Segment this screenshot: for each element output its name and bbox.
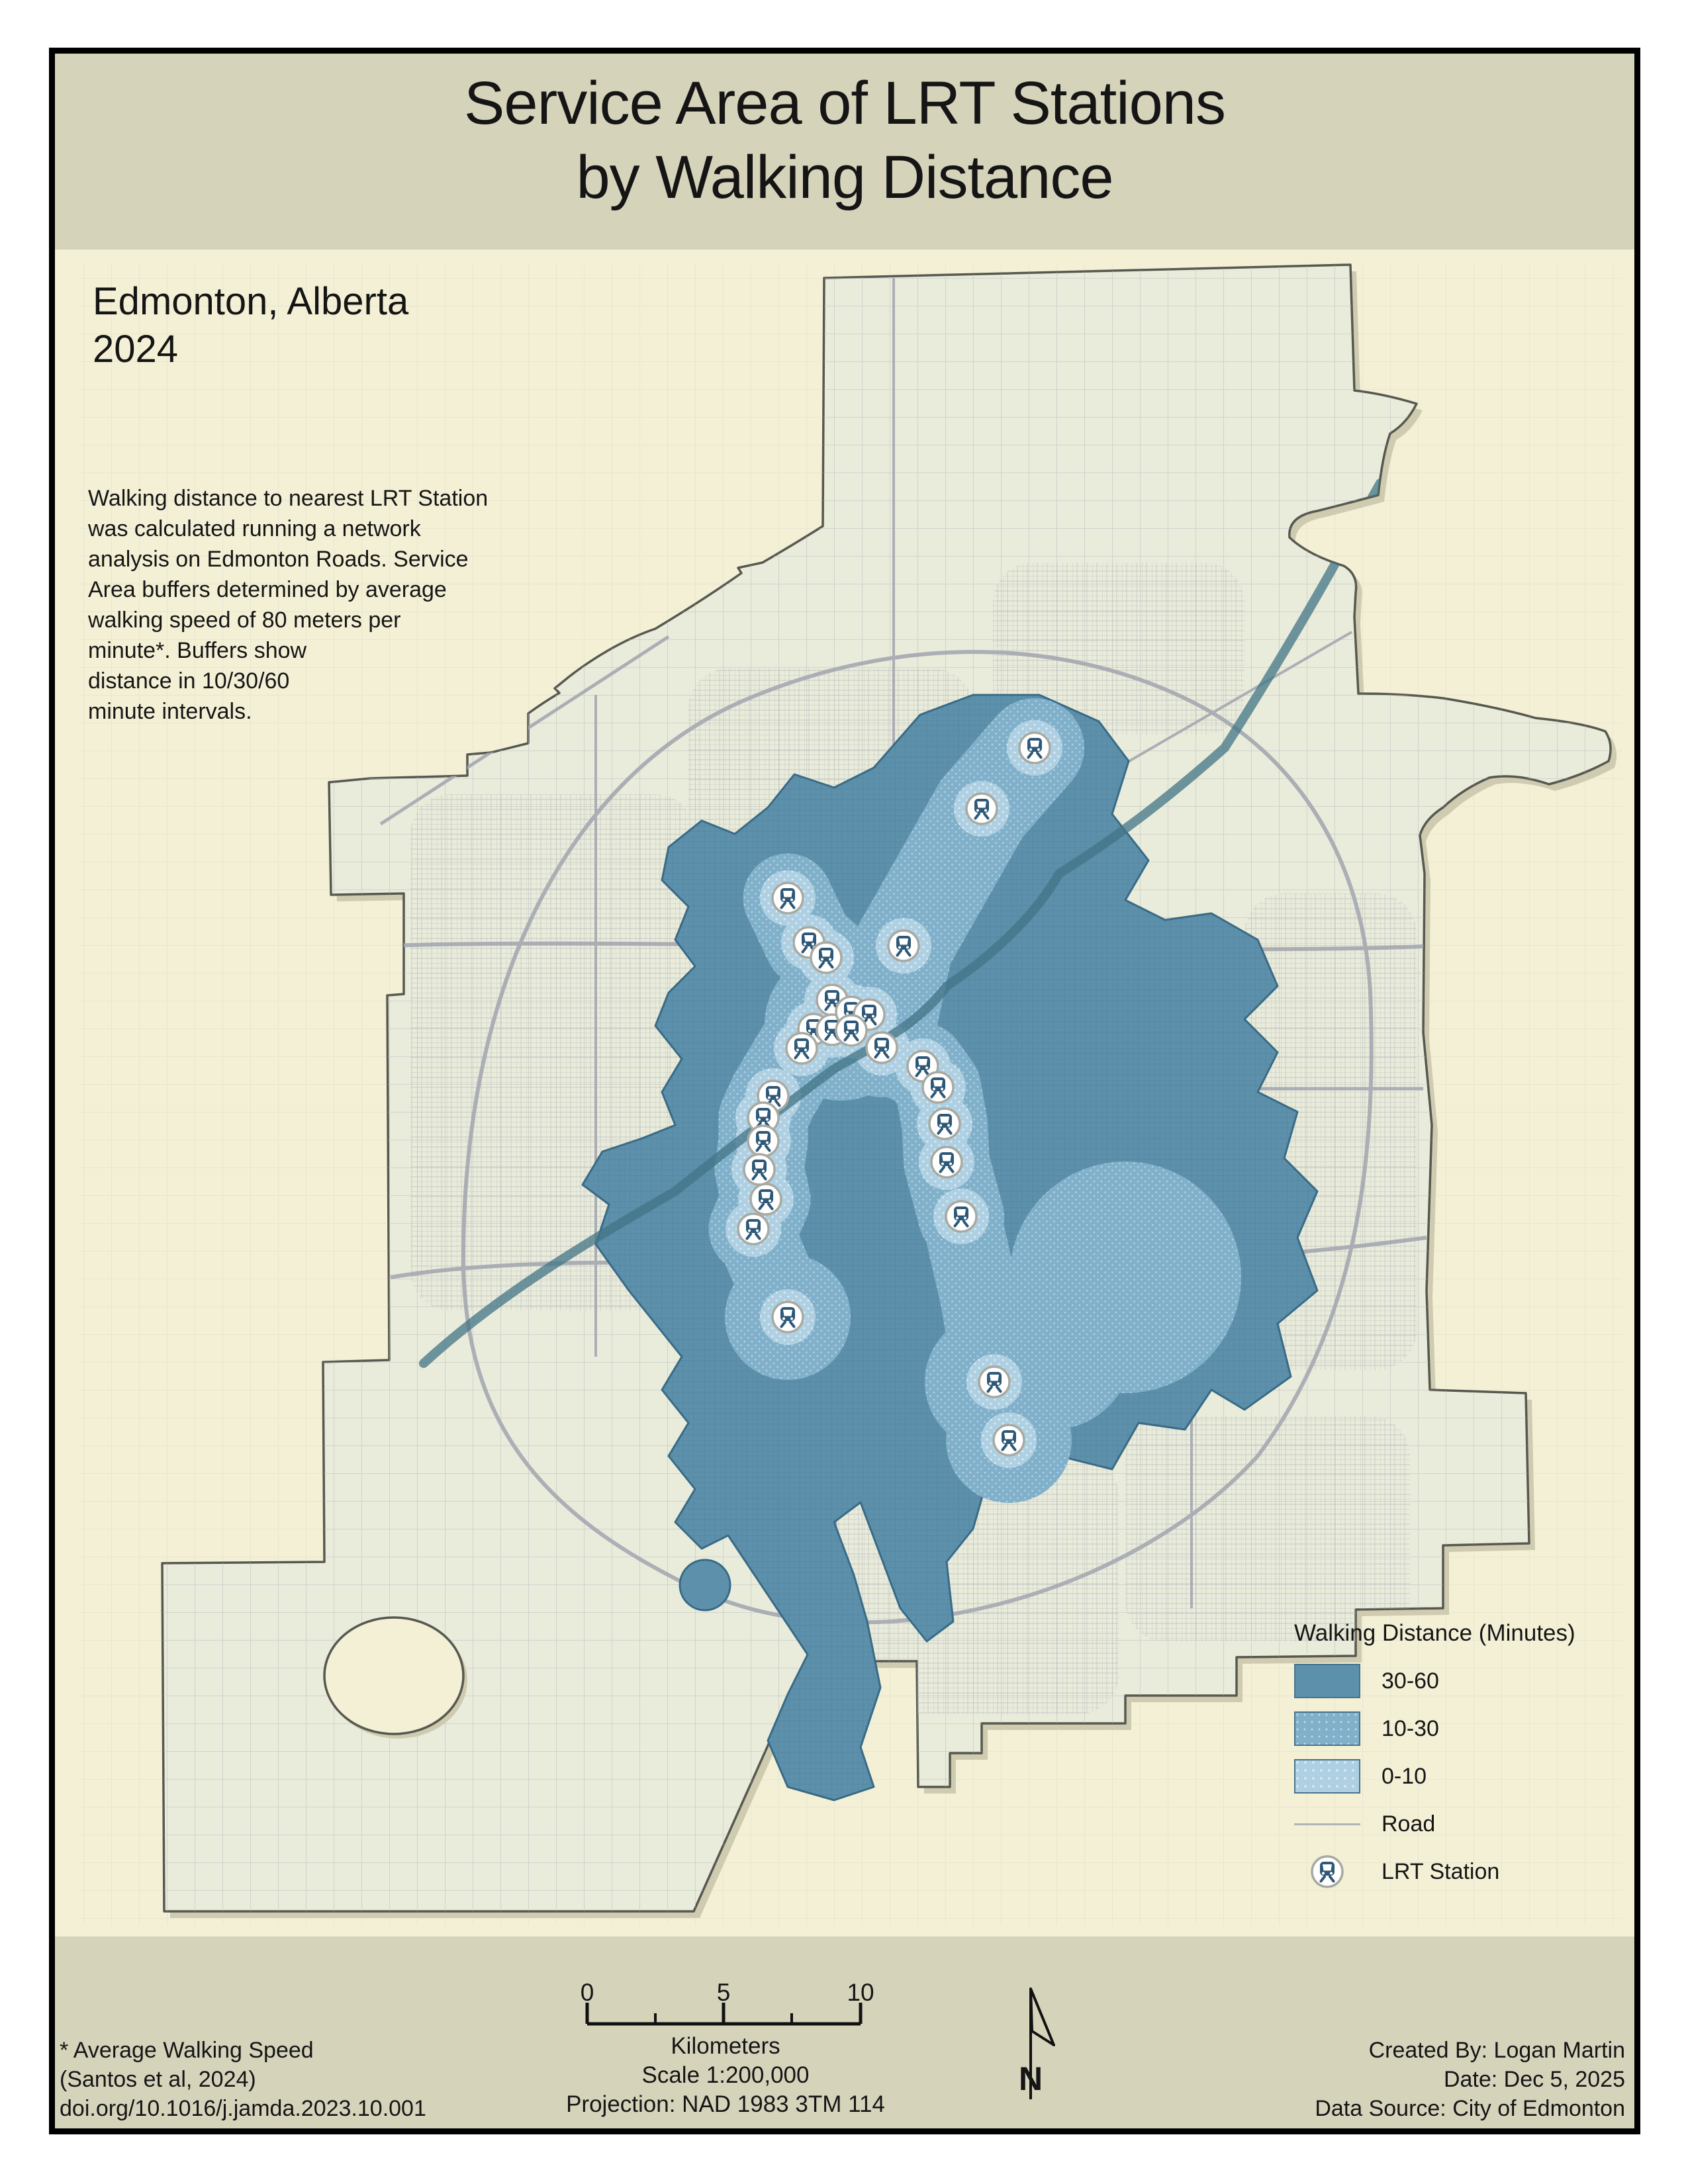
lrt-station-marker xyxy=(786,1033,817,1064)
lrt-station-marker xyxy=(946,1201,976,1232)
lrt-station-marker xyxy=(811,942,841,973)
swatch-30-60 xyxy=(1294,1664,1360,1698)
north-label: N xyxy=(1011,2060,1051,2098)
lrt-station-marker xyxy=(773,883,803,913)
footnote-citation: * Average Walking Speed (Santos et al, 2… xyxy=(60,2036,426,2123)
scale-tick-10: 10 xyxy=(834,1979,887,2007)
lrt-station-marker xyxy=(979,1367,1009,1397)
methodology-note: Walking distance to nearest LRT Station … xyxy=(88,483,551,727)
scale-tick-0: 0 xyxy=(561,1979,614,2007)
legend-item-30-60: 30-60 xyxy=(1294,1664,1612,1698)
scale-unit: Kilometers xyxy=(560,2033,891,2060)
lrt-station-marker xyxy=(1019,733,1050,763)
lrt-station-marker xyxy=(929,1109,960,1139)
legend-item-10-30: 10-30 xyxy=(1294,1711,1612,1746)
subtitle-year: 2024 xyxy=(93,326,408,373)
lrt-station-icon xyxy=(1310,1854,1344,1889)
scale-ratio: Scale 1:200,000 xyxy=(560,2062,891,2089)
lrt-station-marker xyxy=(748,1126,778,1156)
subtitle-place: Edmonton, Alberta xyxy=(93,278,408,326)
lrt-station-marker xyxy=(751,1184,781,1214)
swatch-0-10 xyxy=(1294,1759,1360,1794)
legend-item-0-10: 0-10 xyxy=(1294,1759,1612,1794)
lrt-station-marker xyxy=(867,1032,897,1063)
legend-item-road: Road xyxy=(1294,1807,1612,1841)
lrt-station-marker xyxy=(888,931,919,961)
legend-title: Walking Distance (Minutes) xyxy=(1294,1620,1612,1647)
lrt-station-marker xyxy=(744,1154,774,1185)
title-line-2: by Walking Distance xyxy=(55,140,1634,214)
lrt-station-marker xyxy=(966,794,997,824)
author-credits: Created By: Logan Martin Date: Dec 5, 20… xyxy=(1315,2036,1625,2123)
lrt-station-marker xyxy=(994,1425,1024,1455)
lrt-station-marker xyxy=(931,1147,962,1177)
lrt-station-marker xyxy=(923,1072,953,1103)
legend: Walking Distance (Minutes) 30-60 10-30 0… xyxy=(1294,1620,1612,1902)
title-line-1: Service Area of LRT Stations xyxy=(55,66,1634,140)
map-subtitle: Edmonton, Alberta 2024 xyxy=(93,278,408,373)
swatch-10-30 xyxy=(1294,1711,1360,1746)
legend-item-lrt-station: LRT Station xyxy=(1294,1854,1612,1889)
doi-link: doi.org/10.1016/j.jamda.2023.10.001 xyxy=(60,2094,426,2123)
page-title: Service Area of LRT Stations by Walking … xyxy=(55,66,1634,214)
scale-tick-5: 5 xyxy=(697,1979,750,2007)
road-line-icon xyxy=(1294,1823,1360,1825)
map-poster-page: Service Area of LRT Stations by Walking … xyxy=(0,0,1688,2184)
lrt-station-marker xyxy=(773,1302,803,1332)
lrt-station-marker xyxy=(738,1214,769,1244)
projection-note: Projection: NAD 1983 3TM 114 xyxy=(560,2091,891,2118)
lrt-station-marker xyxy=(836,1015,867,1046)
